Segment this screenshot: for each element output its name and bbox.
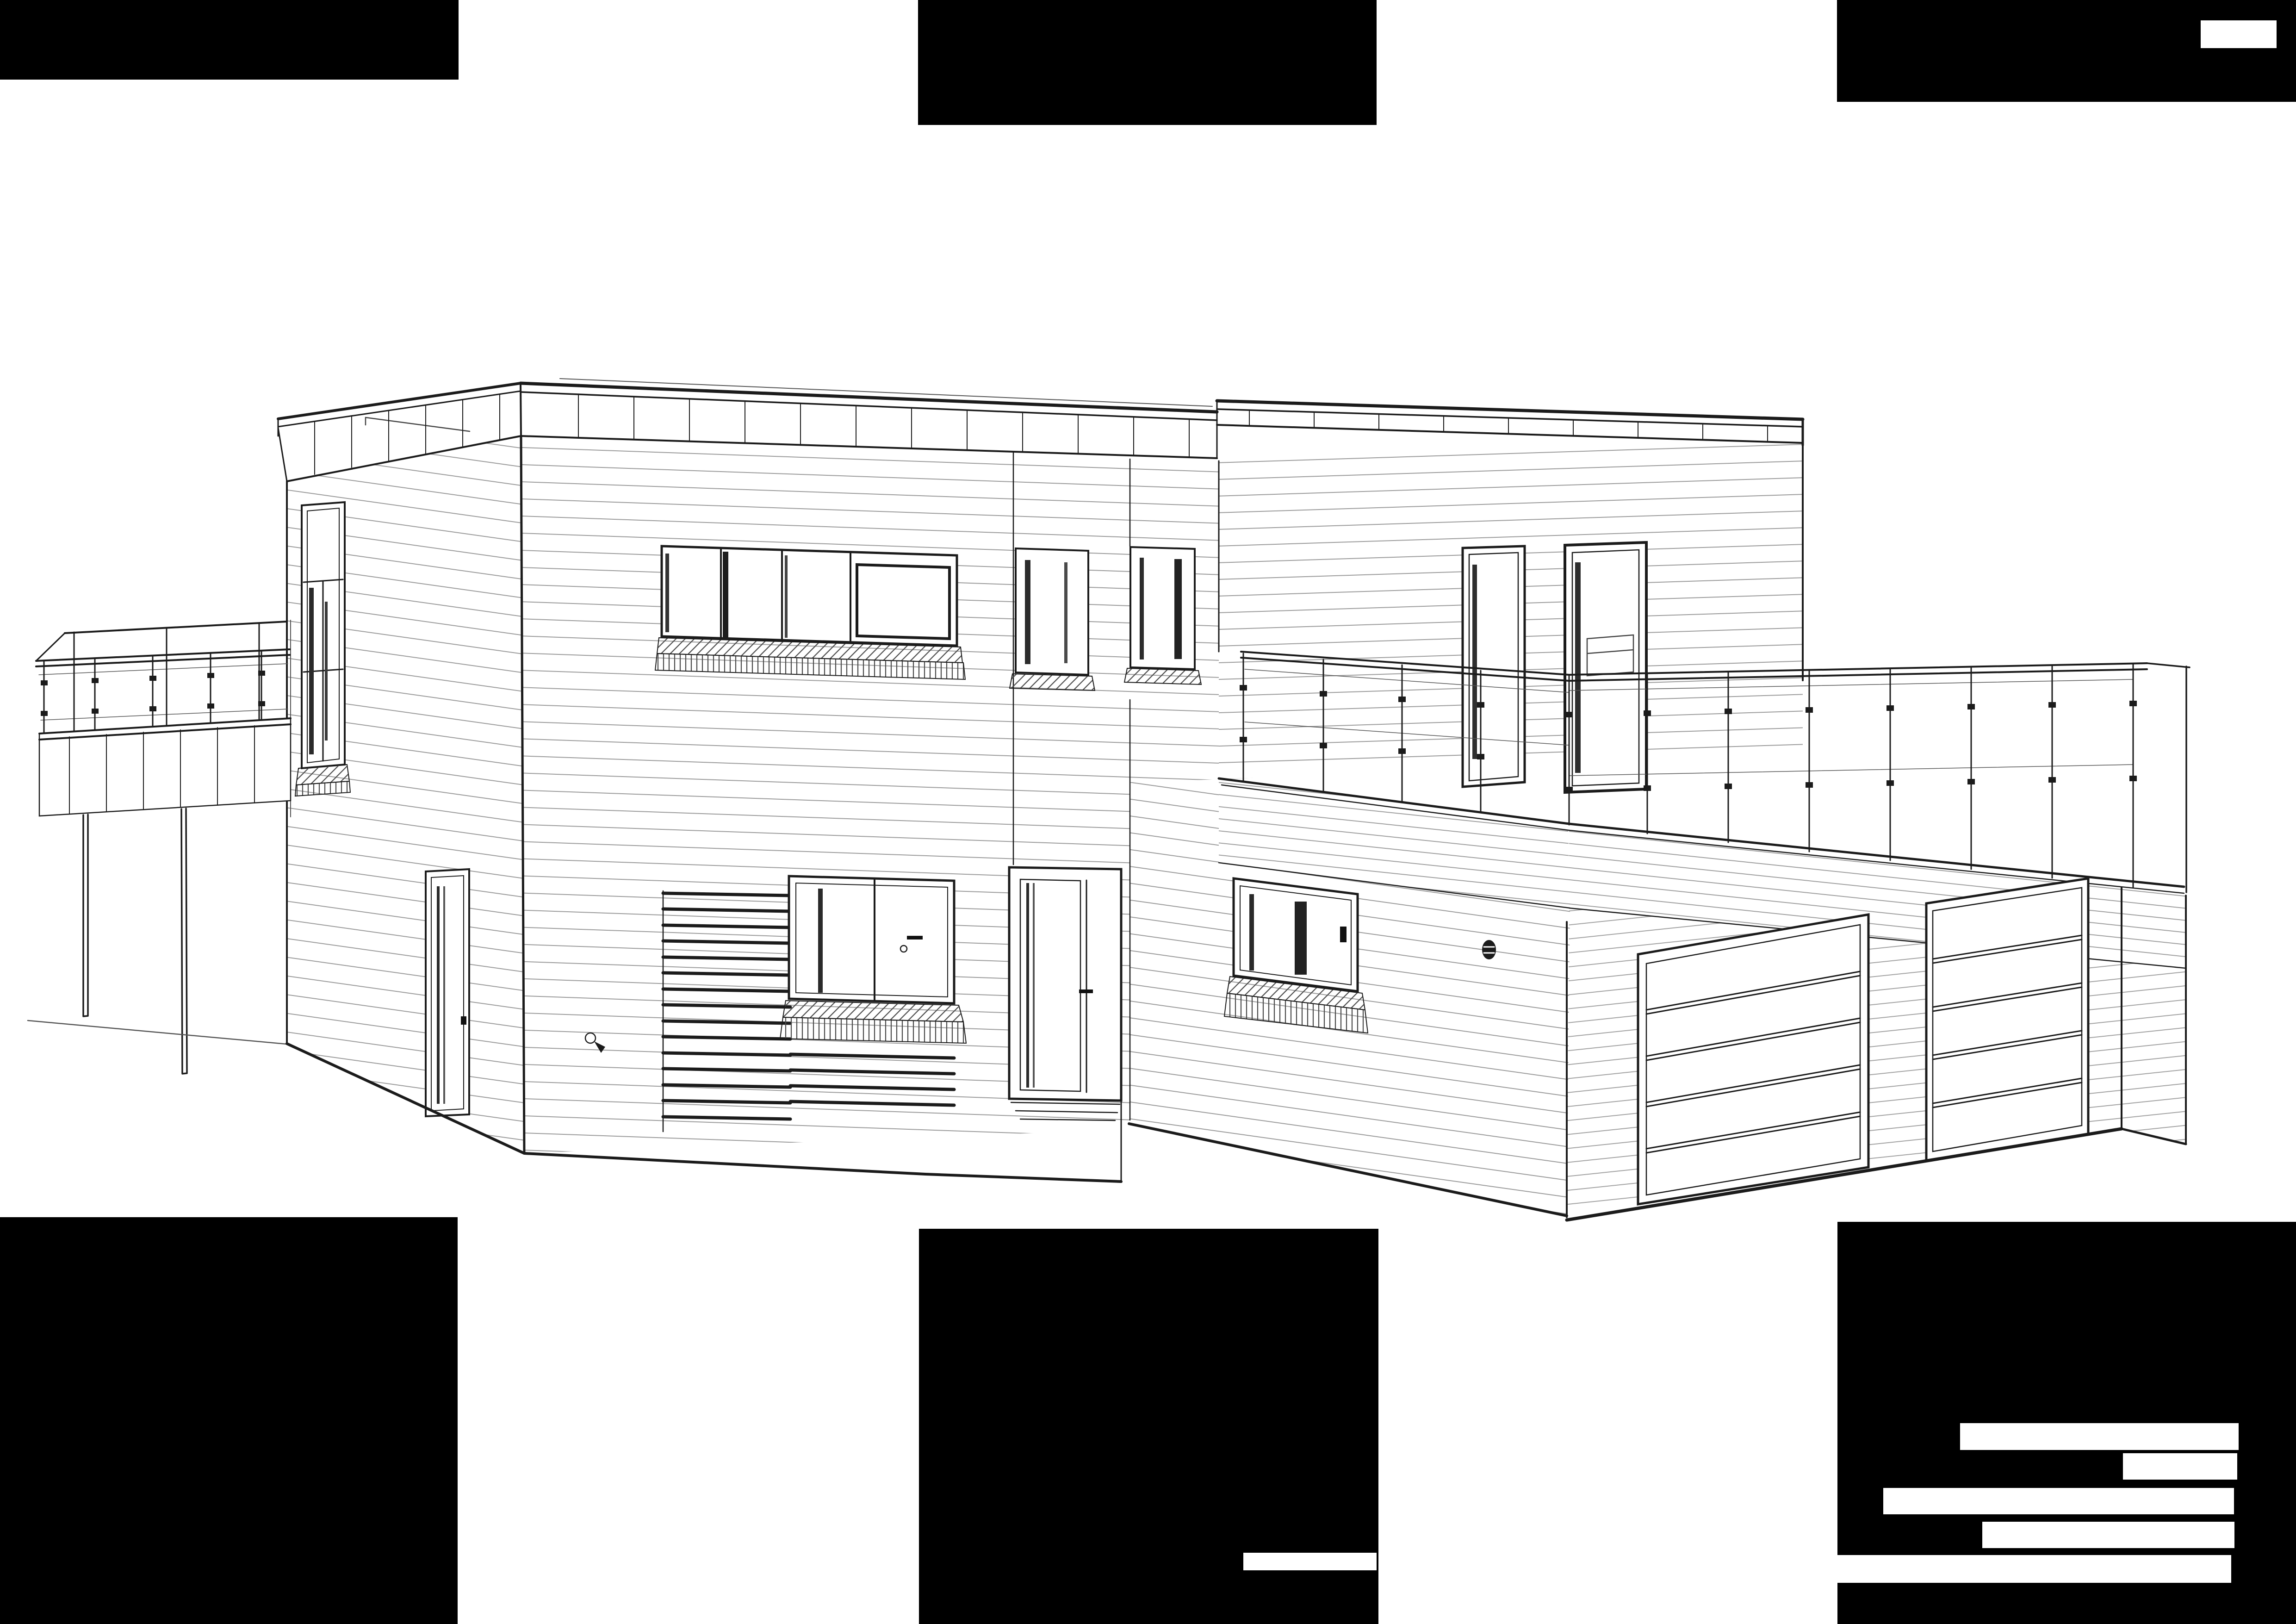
balcony-fascia [39, 718, 291, 816]
outlet-icon [1482, 940, 1496, 959]
garage-door-1 [1638, 915, 1868, 1204]
redaction-block-bottom-left [0, 1217, 458, 1624]
entry-upper-window-1 [1010, 548, 1095, 691]
door-handle [461, 1016, 466, 1025]
entry-door-handle [1079, 989, 1093, 993]
redaction-cutout [2123, 1453, 2237, 1480]
screenshot-canvas [0, 0, 2296, 1624]
redaction-block-top-center [918, 0, 1377, 125]
redaction-cutout [1883, 1488, 2234, 1514]
balcony-rail-back [65, 622, 287, 633]
strip-window [655, 546, 965, 679]
redaction-block-top-right [1837, 0, 2296, 102]
garage-door-2 [1926, 878, 2088, 1161]
left-balcony [36, 622, 291, 1074]
redaction-cutout [2201, 20, 2277, 48]
redaction-block-bottom-center [919, 1229, 1378, 1624]
terrace-door-1 [1463, 546, 1525, 787]
window-handle [907, 936, 923, 940]
entry-upper-window-2 [1124, 547, 1201, 684]
garage-window [1224, 878, 1368, 1033]
wall-planes [287, 436, 2186, 1217]
redaction-cutout [1960, 1423, 2239, 1450]
redaction-block-bottom-right [1837, 1222, 2296, 1624]
railing-return [2147, 663, 2190, 892]
entry-door [1009, 867, 1121, 1120]
redaction-cutout [1982, 1522, 2234, 1548]
side-door [426, 869, 469, 1116]
terrace-door-2 [1565, 542, 1646, 792]
redaction-cutout [1837, 1555, 2231, 1583]
redaction-block-top-left [0, 0, 459, 80]
lower-window [780, 876, 966, 1043]
corner-window [295, 502, 350, 796]
redaction-cutout [1243, 1553, 1377, 1570]
